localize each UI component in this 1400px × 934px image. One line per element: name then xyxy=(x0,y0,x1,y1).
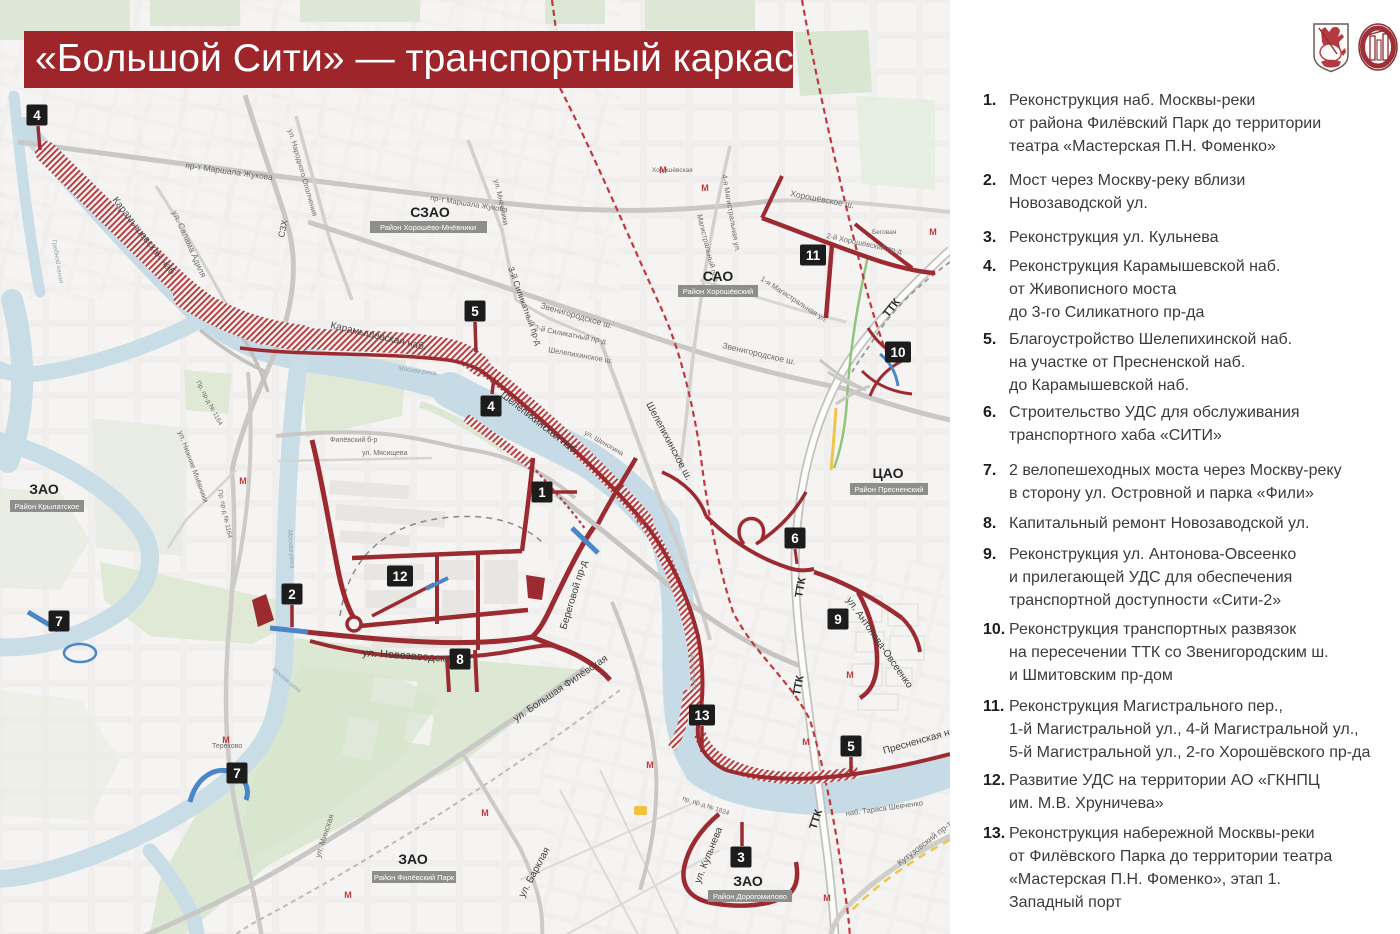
svg-text:М: М xyxy=(636,515,644,525)
svg-text:3: 3 xyxy=(737,850,745,865)
svg-text:М: М xyxy=(929,227,937,237)
svg-text:4: 4 xyxy=(33,108,41,123)
svg-text:9: 9 xyxy=(834,612,842,627)
svg-text:ЗАО: ЗАО xyxy=(733,873,763,889)
svg-text:7: 7 xyxy=(55,614,63,629)
svg-text:М: М xyxy=(823,893,831,903)
svg-text:Район Филёвский Парк: Район Филёвский Парк xyxy=(374,873,455,882)
svg-text:ЗАО: ЗАО xyxy=(398,851,428,867)
svg-text:Район Крылатское: Район Крылатское xyxy=(15,502,80,511)
svg-text:М: М xyxy=(239,476,247,486)
svg-text:4: 4 xyxy=(487,399,495,414)
svg-text:5: 5 xyxy=(847,739,855,754)
svg-text:САО: САО xyxy=(703,268,734,284)
svg-text:Район Пресненский: Район Пресненский xyxy=(855,485,924,494)
svg-text:СЗАО: СЗАО xyxy=(410,204,450,220)
svg-text:М: М xyxy=(659,165,667,175)
svg-text:Филёвский б-р: Филёвский б-р xyxy=(330,436,378,444)
svg-text:М: М xyxy=(802,737,810,747)
svg-text:Беговая: Беговая xyxy=(872,229,897,236)
svg-text:6: 6 xyxy=(791,531,799,546)
svg-text:2: 2 xyxy=(288,587,296,602)
svg-text:М: М xyxy=(701,183,709,193)
svg-text:1: 1 xyxy=(538,485,546,500)
svg-text:Район Дорогомилово: Район Дорогомилово xyxy=(713,892,787,901)
svg-text:Район Хорошёво-Мнёвники: Район Хорошёво-Мнёвники xyxy=(380,223,476,232)
svg-text:М: М xyxy=(481,808,489,818)
svg-text:ЦАО: ЦАО xyxy=(872,465,903,481)
svg-text:Хорошёвская: Хорошёвская xyxy=(652,167,693,174)
svg-text:М: М xyxy=(222,735,230,745)
svg-text:ул. Мясищева: ул. Мясищева xyxy=(362,450,408,457)
svg-text:ЗАО: ЗАО xyxy=(29,481,59,497)
svg-text:5: 5 xyxy=(471,304,479,319)
svg-text:М: М xyxy=(646,760,654,770)
svg-text:8: 8 xyxy=(456,652,464,667)
svg-text:Район Хорошёвский: Район Хорошёвский xyxy=(683,287,753,296)
svg-text:7: 7 xyxy=(233,766,241,781)
svg-text:М: М xyxy=(344,890,352,900)
svg-text:12: 12 xyxy=(392,569,407,584)
svg-text:11: 11 xyxy=(806,248,821,263)
svg-text:13: 13 xyxy=(694,708,710,723)
svg-text:М: М xyxy=(846,670,854,680)
svg-text:10: 10 xyxy=(890,345,905,360)
